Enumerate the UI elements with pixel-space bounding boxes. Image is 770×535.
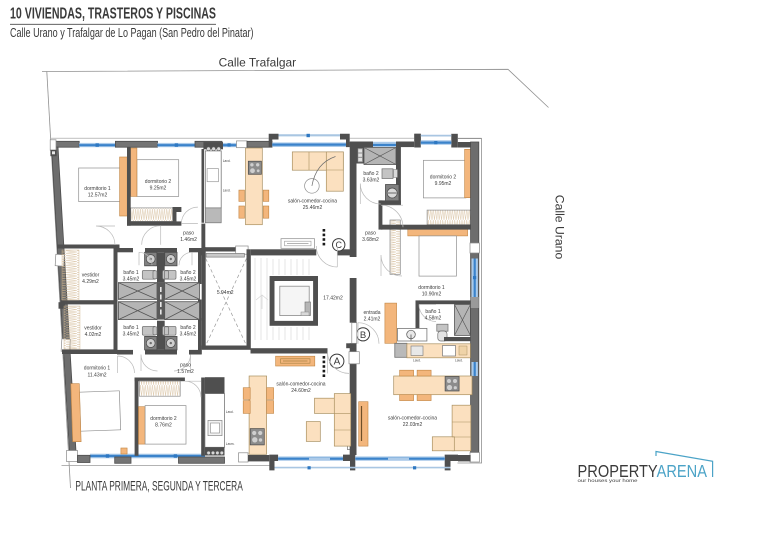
svg-text:Lavd.: Lavd.: [455, 359, 463, 363]
svg-text:baño 1: baño 1: [123, 325, 139, 331]
svg-text:dormitorio 1: dormitorio 1: [418, 285, 445, 291]
svg-text:3.68m2: 3.68m2: [362, 237, 379, 243]
svg-text:Lavd.: Lavd.: [226, 410, 234, 414]
svg-text:dormitorio 2: dormitorio 2: [145, 179, 172, 185]
svg-text:9.95m2: 9.95m2: [435, 181, 452, 187]
svg-text:10.90m2: 10.90m2: [422, 292, 442, 298]
svg-text:9.25m2: 9.25m2: [150, 186, 167, 192]
svg-text:dormitorio 2: dormitorio 2: [430, 175, 457, 181]
svg-text:4.58m2: 4.58m2: [425, 316, 442, 322]
svg-text:baño 1: baño 1: [123, 270, 139, 276]
svg-text:baño 2: baño 2: [180, 270, 196, 276]
svg-text:11.43m2: 11.43m2: [87, 373, 106, 379]
svg-text:paso: paso: [183, 231, 194, 237]
svg-text:A: A: [334, 357, 341, 368]
svg-text:25.46m2: 25.46m2: [303, 205, 323, 211]
svg-text:Lavm.: Lavm.: [226, 442, 235, 446]
svg-text:22.03m2: 22.03m2: [403, 422, 423, 428]
svg-text:dormitorio 1: dormitorio 1: [84, 366, 111, 372]
svg-text:salón-comedor-cocina: salón-comedor-cocina: [288, 199, 337, 205]
svg-text:17.42m2: 17.42m2: [323, 296, 343, 302]
svg-text:1.57m2: 1.57m2: [177, 369, 194, 375]
svg-text:10 VIVIENDAS, TRASTEROS Y PISC: 10 VIVIENDAS, TRASTEROS Y PISCINAS: [10, 5, 216, 22]
svg-text:vestidor: vestidor: [82, 273, 100, 279]
svg-text:Lavd.: Lavd.: [223, 159, 231, 163]
svg-text:3.45m2: 3.45m2: [180, 277, 197, 283]
svg-text:B: B: [360, 330, 366, 341]
svg-text:baño 1: baño 1: [425, 309, 441, 315]
svg-text:4.29m2: 4.29m2: [82, 279, 99, 285]
svg-text:salón-comedor-cocina: salón-comedor-cocina: [388, 416, 437, 422]
svg-text:Calle Urano y Trafalgar de Lo: Calle Urano y Trafalgar de Lo Pagan (San…: [10, 26, 254, 40]
svg-text:salón-comedor-cocina: salón-comedor-cocina: [276, 382, 325, 388]
svg-text:dormitorio 1: dormitorio 1: [84, 186, 111, 192]
svg-text:baño 2: baño 2: [363, 171, 379, 177]
svg-text:entrada: entrada: [364, 310, 381, 316]
svg-text:2.41m2: 2.41m2: [364, 317, 381, 323]
svg-text:C: C: [335, 240, 342, 250]
svg-text:3.45m2: 3.45m2: [180, 332, 197, 338]
svg-text:5.94m2: 5.94m2: [217, 290, 234, 296]
svg-text:dormitorio 2: dormitorio 2: [150, 416, 177, 422]
svg-text:PLANTA PRIMERA, SEGUNDA Y TERC: PLANTA PRIMERA, SEGUNDA Y TERCERA: [75, 479, 243, 494]
svg-text:24.60m2: 24.60m2: [291, 388, 311, 394]
svg-text:Calle Trafalgar: Calle Trafalgar: [219, 55, 297, 69]
svg-text:4.02m2: 4.02m2: [85, 332, 102, 338]
svg-text:3.45m2: 3.45m2: [123, 277, 140, 283]
svg-text:Calle Urano: Calle Urano: [553, 195, 567, 260]
svg-text:8.76m2: 8.76m2: [155, 423, 172, 429]
svg-text:3.45m2: 3.45m2: [123, 332, 140, 338]
svg-text:Lavd.: Lavd.: [413, 359, 421, 363]
svg-text:vestidor: vestidor: [84, 326, 102, 332]
svg-text:our houses your home: our houses your home: [578, 478, 639, 483]
svg-text:paso: paso: [365, 231, 376, 237]
svg-text:paso: paso: [180, 363, 191, 369]
svg-text:1.46m2: 1.46m2: [180, 237, 197, 243]
svg-text:12.57m2: 12.57m2: [88, 193, 108, 199]
svg-text:baño 2: baño 2: [180, 325, 196, 331]
svg-text:3.63m2: 3.63m2: [363, 178, 380, 184]
svg-text:Lavd.: Lavd.: [223, 189, 231, 193]
